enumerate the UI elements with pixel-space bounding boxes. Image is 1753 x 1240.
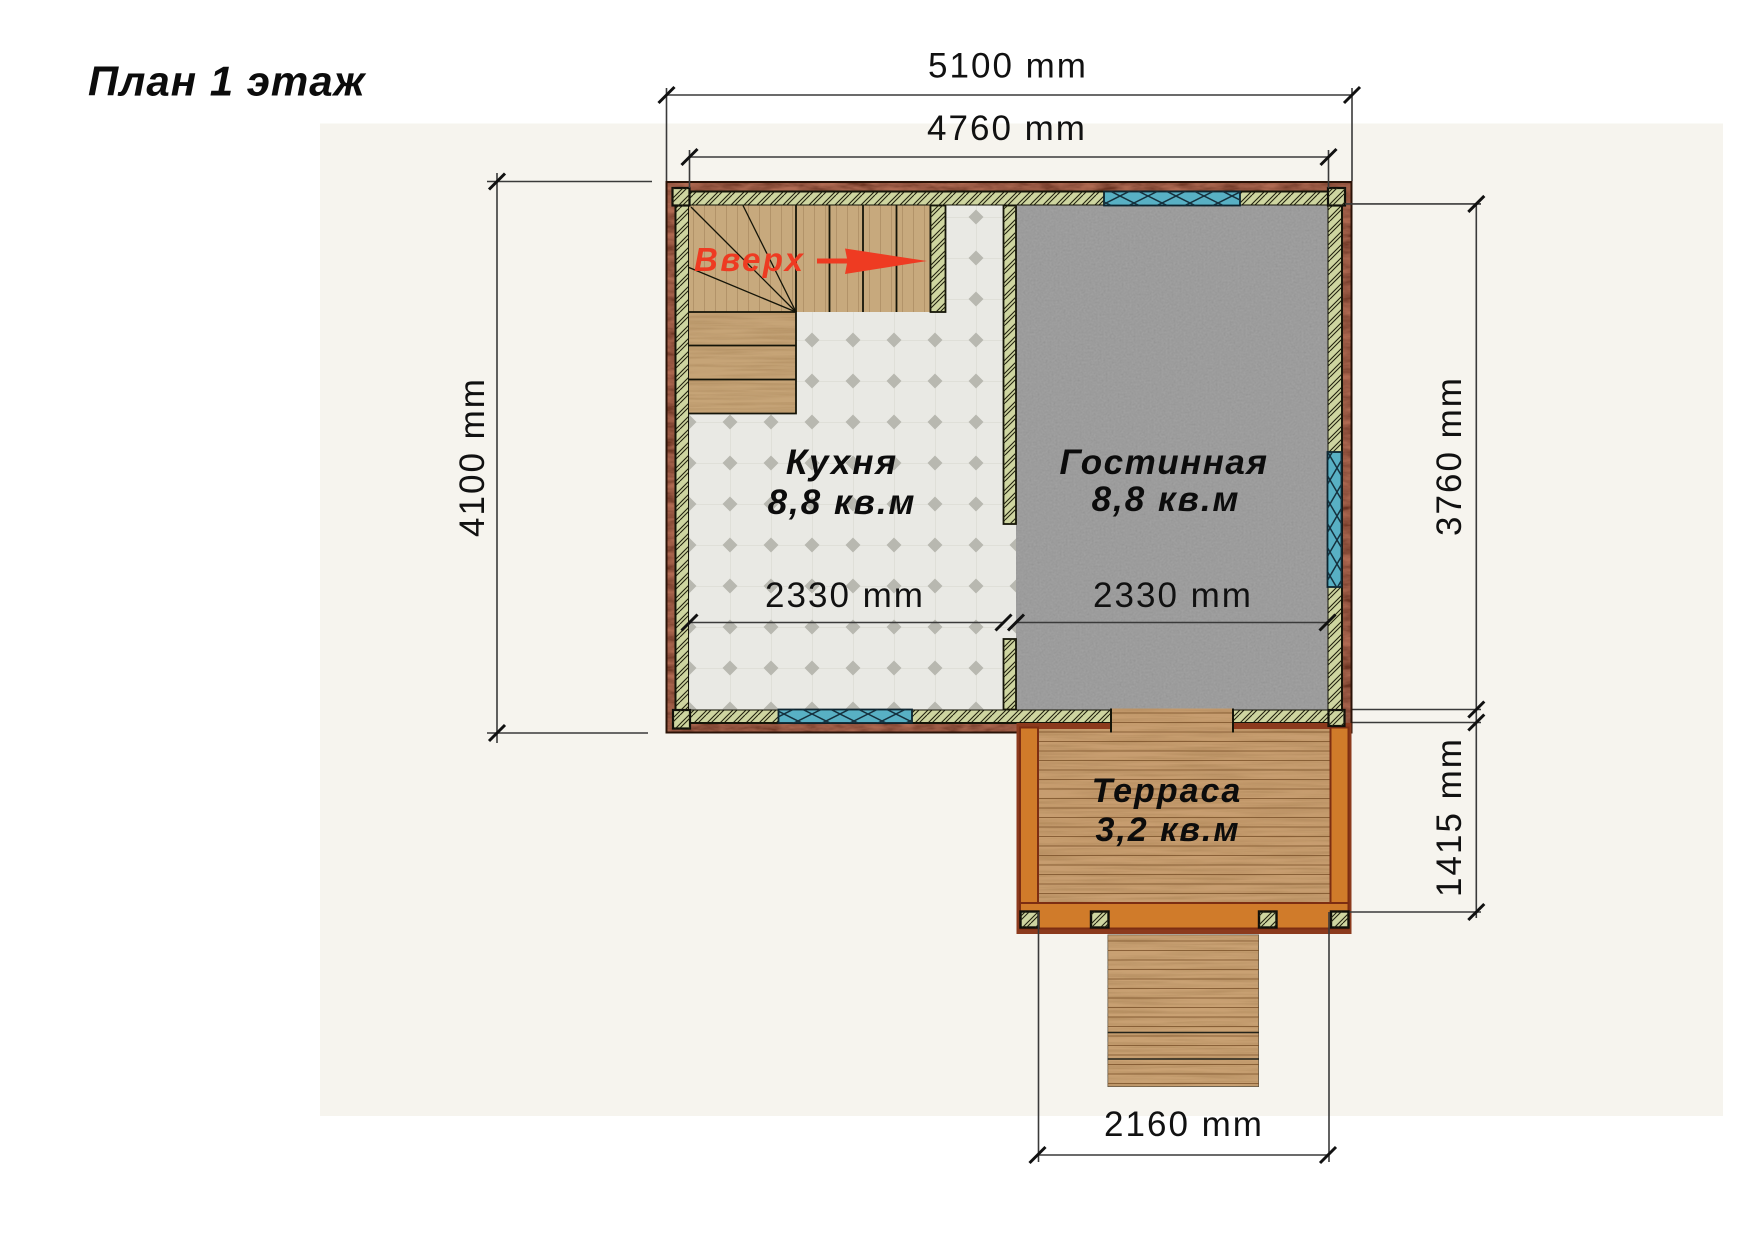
svg-text:8,8 кв.м: 8,8 кв.м <box>1092 480 1241 519</box>
svg-text:1415 mm: 1415 mm <box>1430 737 1469 897</box>
svg-text:2330 mm: 2330 mm <box>765 576 925 615</box>
svg-text:2330 mm: 2330 mm <box>1093 576 1253 615</box>
svg-text:План 1 этаж: План 1 этаж <box>88 58 367 105</box>
svg-text:Вверх: Вверх <box>694 241 805 278</box>
svg-text:4760 mm: 4760 mm <box>927 109 1087 148</box>
svg-text:Кухня: Кухня <box>786 443 898 482</box>
svg-text:3,2 кв.м: 3,2 кв.м <box>1095 811 1240 849</box>
svg-text:3760 mm: 3760 mm <box>1430 376 1469 536</box>
svg-text:5100 mm: 5100 mm <box>928 47 1088 86</box>
svg-text:4100 mm: 4100 mm <box>453 377 492 537</box>
svg-text:8,8 кв.м: 8,8 кв.м <box>768 483 917 522</box>
svg-text:Гостинная: Гостинная <box>1060 443 1269 482</box>
svg-text:Терраса: Терраса <box>1092 772 1243 810</box>
svg-text:2160 mm: 2160 mm <box>1104 1105 1264 1144</box>
